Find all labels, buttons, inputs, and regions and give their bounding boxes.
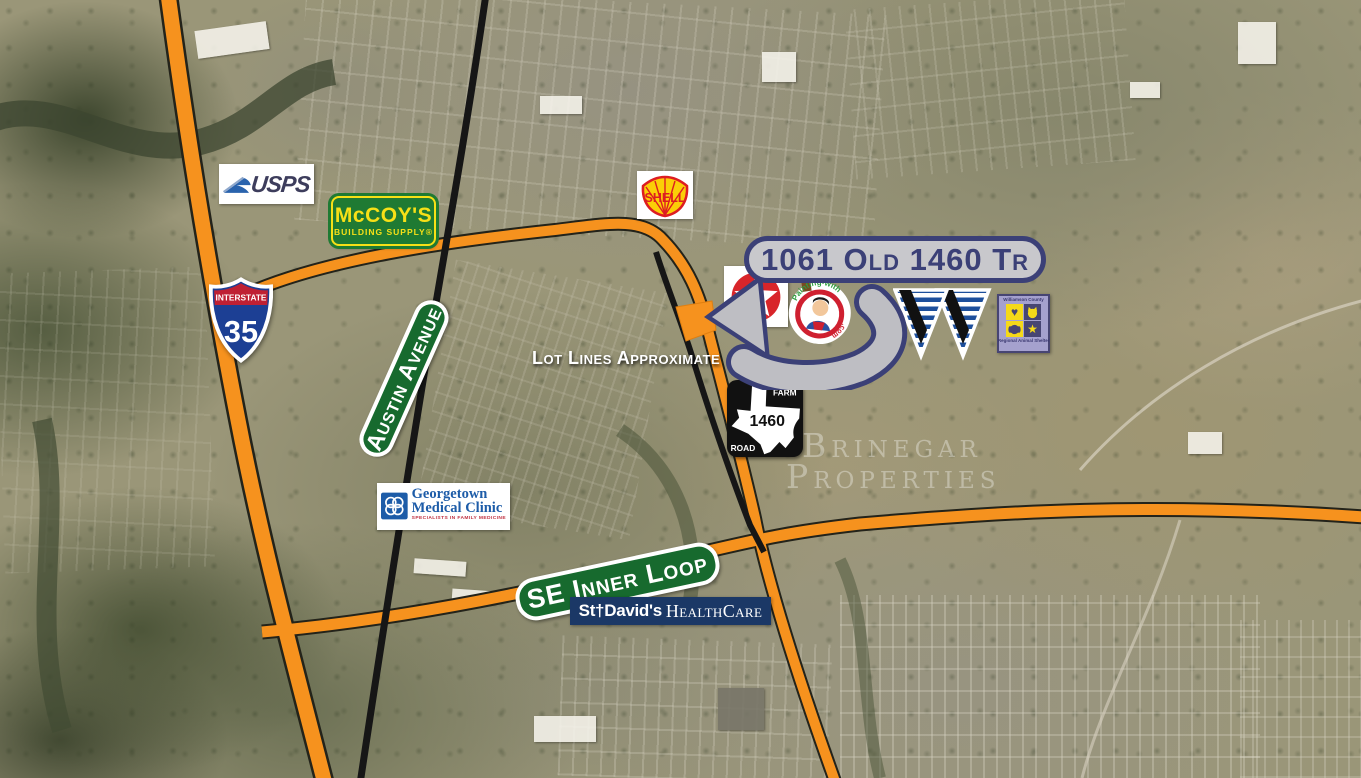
st-davids-healthcare-logo: St†David's HealthCare — [570, 597, 771, 625]
interstate-35-shield: INTERSTATE 35 — [209, 266, 273, 374]
shell-icon: SHELL — [637, 171, 693, 219]
road-label: ROAD — [731, 443, 756, 453]
st-davids-suffix: HealthCare — [666, 601, 762, 622]
mccoys-name: McCOY'S — [335, 205, 432, 227]
interstate-label: INTERSTATE — [216, 292, 267, 302]
usps-logo: USPS — [219, 164, 314, 204]
st-davids-name: St†David's — [579, 601, 662, 621]
clinic-tagline: SPECIALISTS IN FAMILY MEDICINE — [412, 516, 506, 521]
clinic-clover-icon — [381, 487, 408, 525]
aerial-map: USPS McCOY'S BUILDING SUPPLY® SHELL T Lo… — [0, 0, 1361, 778]
georgetown-medical-clinic-logo: Georgetown Medical Clinic SPECIALISTS IN… — [377, 483, 510, 530]
star-icon: ★ — [1024, 321, 1041, 337]
shell-sign: SHELL — [637, 171, 693, 219]
dog-icon — [1006, 321, 1023, 337]
roads-layer — [0, 0, 1361, 778]
shell-wordmark: SHELL — [645, 191, 686, 205]
brinegar-watermark: Brinegar Properties — [786, 430, 1001, 492]
heart-icon: ♥ — [1006, 304, 1023, 320]
animal-shelter-logo: Williamson County ♥ ★ Regional Animal Sh… — [997, 294, 1050, 353]
cat-icon — [1024, 304, 1041, 320]
clinic-name-line2: Medical Clinic — [412, 501, 506, 515]
route-number: 1460 — [750, 413, 786, 430]
shelter-icon-grid: ♥ ★ — [1006, 304, 1041, 337]
shelter-header: Williamson County — [1003, 297, 1043, 302]
usps-eagle-icon — [223, 169, 251, 199]
clinic-name-line1: Georgetown — [412, 487, 506, 501]
property-address-label: 1061 Old 1460 Tr — [761, 242, 1029, 278]
interstate-number: 35 — [224, 314, 258, 349]
shelter-footer: Regional Animal Shelter — [998, 338, 1050, 343]
painting-company-sticker: Painting-with .com — [778, 274, 862, 348]
watermark-line2: Properties — [786, 461, 1001, 492]
usps-wordmark: USPS — [250, 171, 311, 198]
mccoys-tagline: BUILDING SUPPLY® — [334, 227, 433, 237]
property-address-callout: 1061 Old 1460 Tr — [744, 236, 1046, 283]
mccoys-sign: McCOY'S BUILDING SUPPLY® — [331, 196, 436, 246]
